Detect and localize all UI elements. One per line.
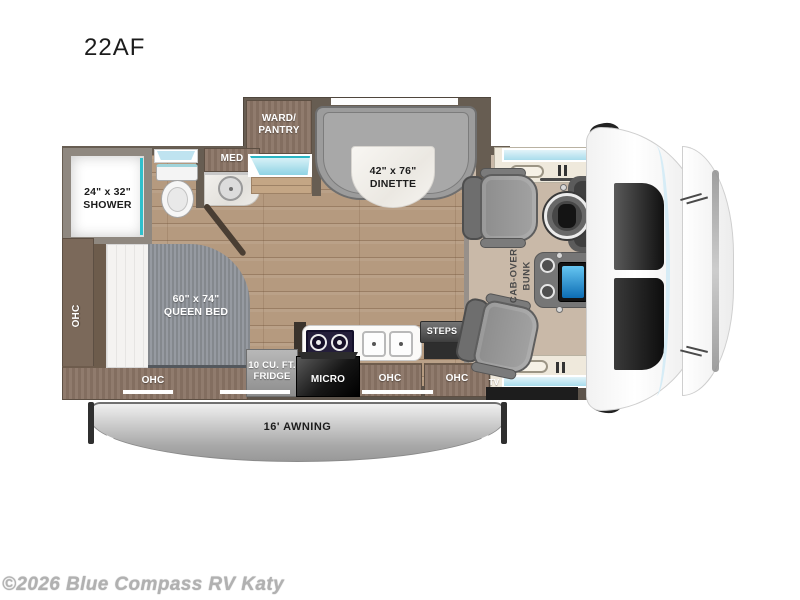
bottom-trim-mark-1 [123,390,173,394]
cab-over-bunk-zone: CAB-OVER BUNK [481,241,561,311]
med-label: MED [204,153,260,165]
bottom-trim-mark-2 [220,390,290,394]
sink-drain-right [399,342,403,346]
cab-over-bunk-label: CAB-OVER BUNK [508,249,534,304]
floorplan-page: 22AF 24" x 32" SHOWER MED WARD/ PANTRY 4… [0,0,800,600]
fridge-label: 10 CU. FT. FRIDGE [246,360,298,383]
page-title: 22AF [84,34,145,63]
driver-seat-cushion [480,174,538,242]
dash-screw-2 [556,252,563,259]
front-cap [682,146,734,396]
ohc-left-label: OHC [67,290,87,342]
cooktop-burner-right-grate [337,340,342,345]
dash-screw-3 [556,306,563,313]
ohc-bottom-label: OHC [130,375,176,387]
tv-label: TV [486,378,502,388]
shower-label: 24" x 32" SHOWER [71,186,144,211]
dinette-label: 42" x 76" DINETTE [351,165,435,190]
tv-cabinet [486,387,578,400]
ohc-right-label: OHC [424,373,490,385]
passenger-door-hinge [556,362,559,373]
watermark: ©2026 Blue Compass RV Katy [2,574,362,597]
microwave-top-face [298,352,358,359]
ohc-mid-label: OHC [358,373,422,385]
ward-drawer-divider [252,185,311,186]
toilet-tank [156,164,198,181]
bottom-trim-mark-3 [362,390,433,394]
slideout-roof-strip [331,98,458,105]
driver-door-window [502,148,592,162]
micro-label: MICRO [296,374,360,386]
dash-screw-1 [560,184,567,191]
driver-door-hinge [558,165,561,176]
sink-drain-left [372,342,376,346]
steering-wheel-hub [558,204,576,228]
ward-pantry-label: WARD/ PANTRY [246,113,312,137]
toilet-seat [167,187,188,212]
awning-label: 16' AWNING [90,421,505,434]
toilet-window-glass [157,151,195,160]
bed-headboard [94,244,106,368]
queen-bed-label: 60" x 74" QUEEN BED [140,293,252,318]
infotainment-screen-glow [562,266,584,298]
cooktop-burner-left-grate [316,340,321,345]
vanity-sink-drain [229,187,233,191]
driver-seat [460,168,542,248]
front-cap-trim-line [712,170,719,372]
